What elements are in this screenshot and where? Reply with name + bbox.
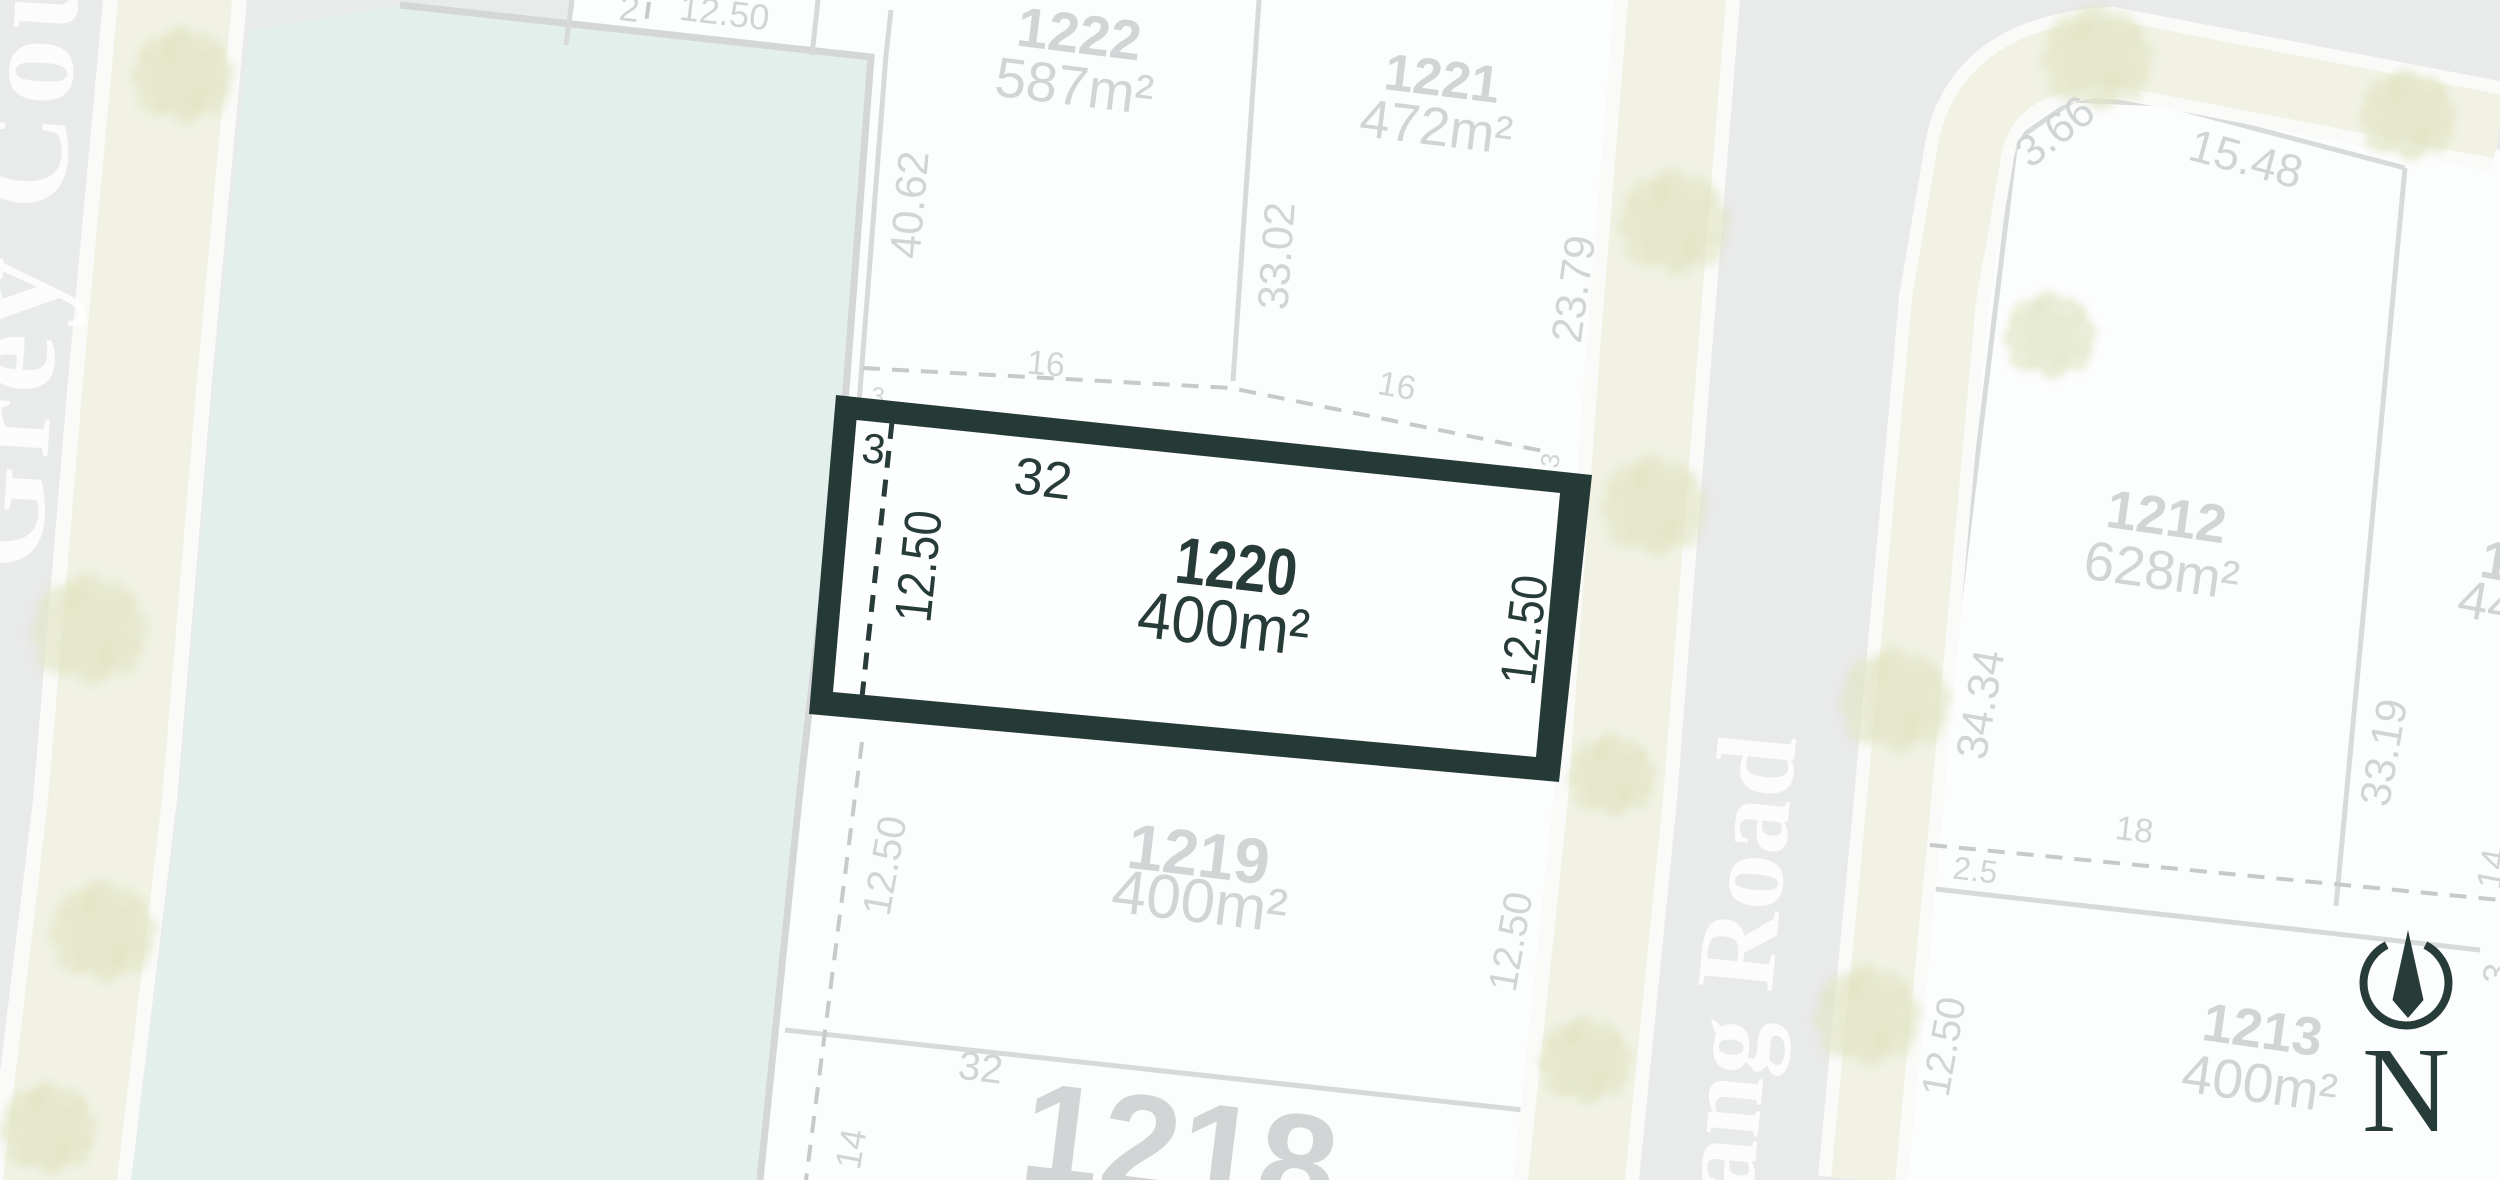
svg-text:16: 16 <box>1025 343 1066 384</box>
svg-text:32: 32 <box>956 1044 1006 1093</box>
svg-text:32: 32 <box>1011 447 1075 512</box>
svg-text:14: 14 <box>827 1126 874 1173</box>
svg-text:2.5: 2.5 <box>1951 850 2000 891</box>
svg-text:16: 16 <box>1375 364 1419 408</box>
svg-text:12.50: 12.50 <box>884 507 953 624</box>
svg-text:40.62: 40.62 <box>881 149 938 260</box>
svg-text:18: 18 <box>2113 809 2155 851</box>
svg-text:14: 14 <box>2468 846 2500 893</box>
svg-text:N: N <box>2362 1023 2450 1158</box>
svg-text:33.02: 33.02 <box>1249 201 1304 312</box>
